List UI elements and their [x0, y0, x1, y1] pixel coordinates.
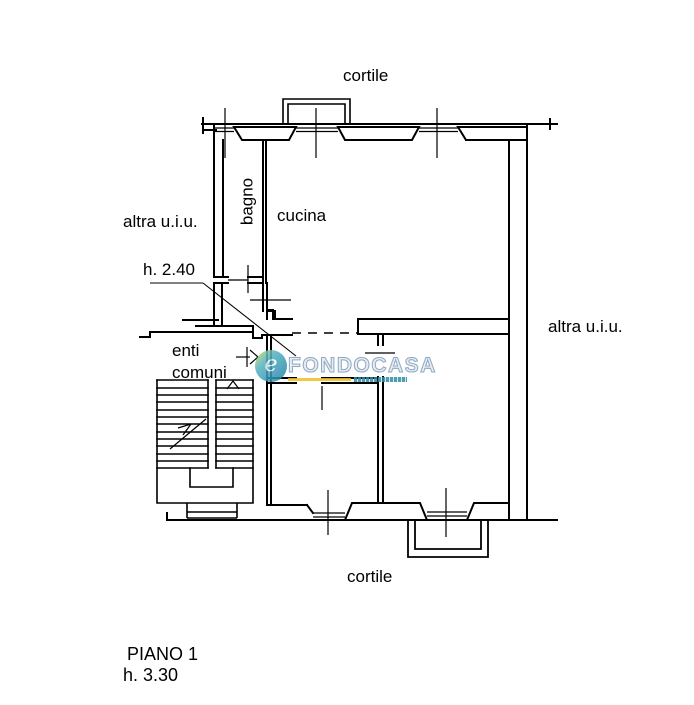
- floor-plan-page: cortile altra u.i.u. bagno cucina h. 2.4…: [0, 0, 694, 705]
- balcony-bottom: [408, 520, 488, 557]
- top-wall: [202, 118, 557, 140]
- agency-watermark: e FONDOCASA: [255, 347, 430, 389]
- watermark-yellow-underline: [288, 378, 351, 381]
- label-altra-uiu-right: altra u.i.u.: [548, 316, 623, 337]
- label-ceiling-height: h. 2.40: [143, 259, 195, 280]
- watermark-tagline-strip: [354, 377, 407, 382]
- right-wall: [509, 124, 527, 520]
- label-cucina: cucina: [277, 205, 326, 226]
- label-cortile-bottom: cortile: [347, 566, 392, 587]
- label-enti-comuni: enti comuni: [172, 340, 227, 384]
- staircase: [157, 380, 253, 503]
- label-altra-uiu-left: altra u.i.u.: [123, 211, 198, 232]
- watermark-monogram: e: [264, 354, 277, 376]
- label-cortile-top: cortile: [343, 65, 388, 86]
- label-bagno: bagno: [237, 167, 258, 237]
- watermark-brand-name: FONDOCASA: [288, 354, 437, 378]
- stair-stoop: [187, 503, 237, 518]
- label-floor-number: PIANO 1: [127, 643, 198, 665]
- label-floor-height: h. 3.30: [123, 664, 178, 686]
- watermark-logo-icon: e: [255, 350, 287, 382]
